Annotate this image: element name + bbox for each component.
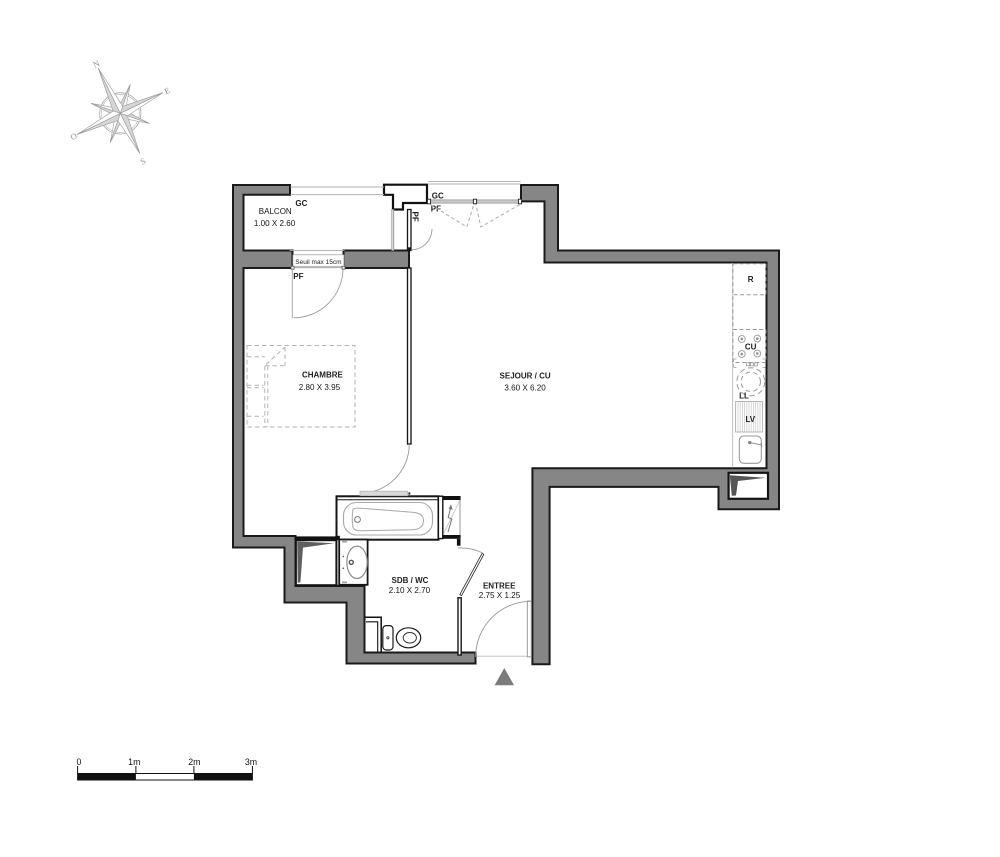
svg-text:3.60 X 6.20: 3.60 X 6.20 [504, 383, 546, 392]
svg-text:2m: 2m [188, 757, 200, 767]
svg-text:GC: GC [432, 192, 444, 201]
svg-text:2.80 X 3.95: 2.80 X 3.95 [299, 383, 341, 392]
svg-text:PF: PF [293, 272, 303, 281]
svg-text:0: 0 [77, 757, 82, 767]
svg-text:CU: CU [745, 342, 757, 351]
svg-text:PF: PF [411, 212, 420, 222]
svg-text:2.10 X 2.70: 2.10 X 2.70 [389, 586, 431, 595]
svg-text:R: R [748, 275, 754, 284]
svg-text:Seuil max 15cm: Seuil max 15cm [295, 259, 341, 266]
svg-text:LL: LL [739, 392, 749, 401]
svg-text:SDB / WC: SDB / WC [392, 576, 429, 585]
svg-text:GC: GC [295, 199, 307, 208]
svg-text:2.75 X 1.25: 2.75 X 1.25 [479, 591, 521, 600]
svg-text:3m: 3m [245, 757, 257, 767]
svg-text:CHAMBRE: CHAMBRE [302, 371, 344, 380]
svg-text:1m: 1m [128, 757, 140, 767]
svg-text:LV: LV [745, 415, 755, 424]
svg-text:ENTREE: ENTREE [483, 582, 516, 591]
svg-text:SEJOUR / CU: SEJOUR / CU [500, 371, 551, 380]
svg-text:BALCON: BALCON [259, 207, 292, 216]
svg-text:1.00 X 2.60: 1.00 X 2.60 [254, 219, 296, 228]
